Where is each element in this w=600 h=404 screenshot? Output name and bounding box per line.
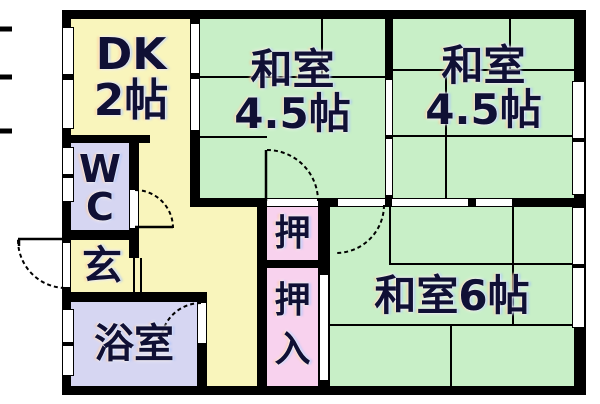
- door-symbols-layer: [0, 0, 600, 404]
- washitsu-six-door-swing-arc: [336, 205, 384, 253]
- wc-door-swing-arc: [135, 190, 173, 228]
- bath-door-swing-arc: [161, 303, 201, 343]
- entrance-door-swing-arc: [18, 240, 66, 288]
- floorplan-canvas: DK 2帖 和室 4.5帖 和室 4.5帖 和室6帖 W C 玄 浴室 押 押 …: [0, 0, 600, 404]
- washitsu-mid-door-swing-arc: [267, 150, 318, 201]
- entrance-door-leaf: [18, 239, 66, 246]
